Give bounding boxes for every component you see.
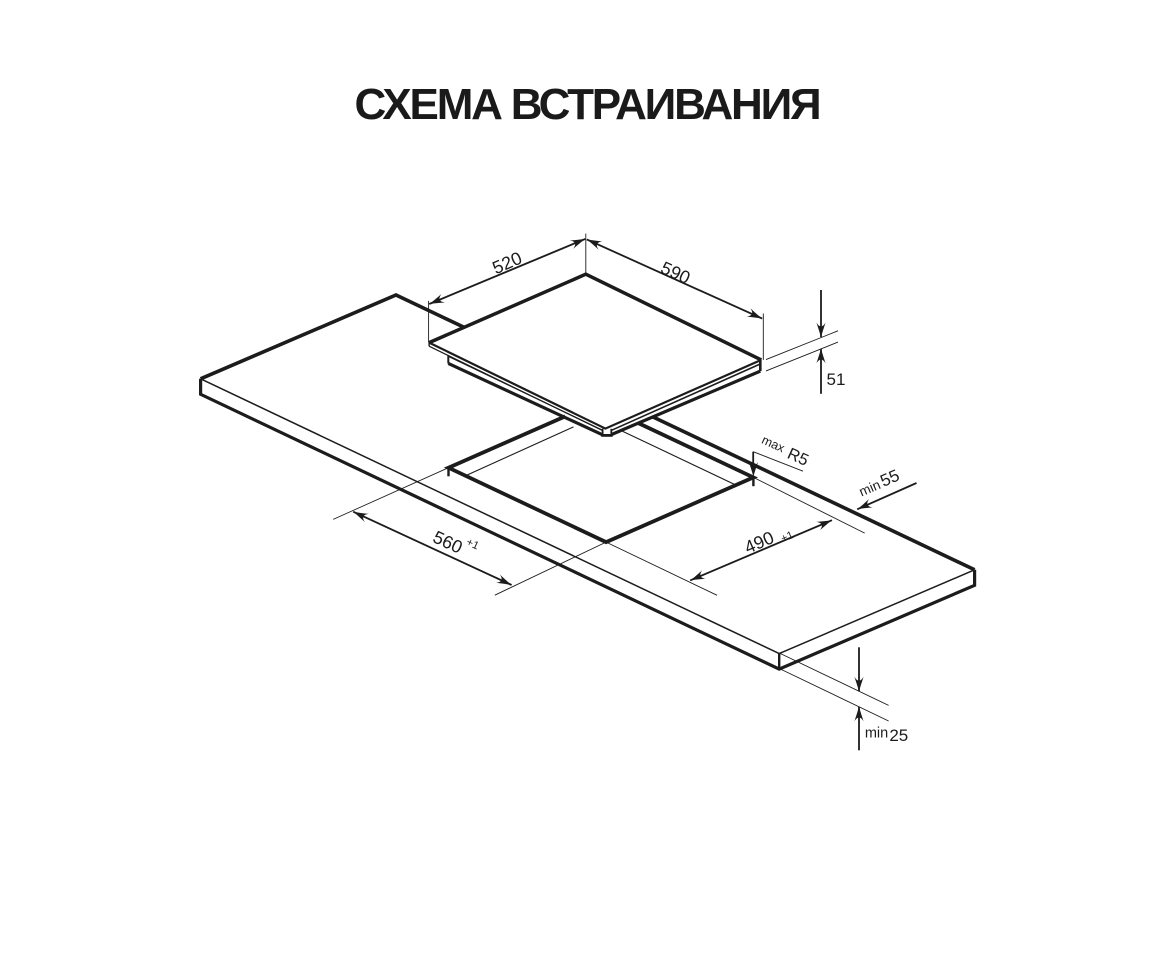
svg-text:25: 25 xyxy=(889,726,908,745)
svg-text:520: 520 xyxy=(489,248,525,278)
svg-text:+1: +1 xyxy=(779,529,795,545)
svg-text:min: min xyxy=(857,477,883,499)
svg-text:590: 590 xyxy=(658,258,694,289)
svg-text:51: 51 xyxy=(827,370,846,389)
svg-text:560: 560 xyxy=(430,527,466,558)
svg-text:55: 55 xyxy=(877,466,902,491)
svg-text:max: max xyxy=(759,433,787,456)
svg-text:min: min xyxy=(865,726,888,742)
svg-text:490: 490 xyxy=(741,527,777,557)
svg-text:+1: +1 xyxy=(464,536,480,552)
